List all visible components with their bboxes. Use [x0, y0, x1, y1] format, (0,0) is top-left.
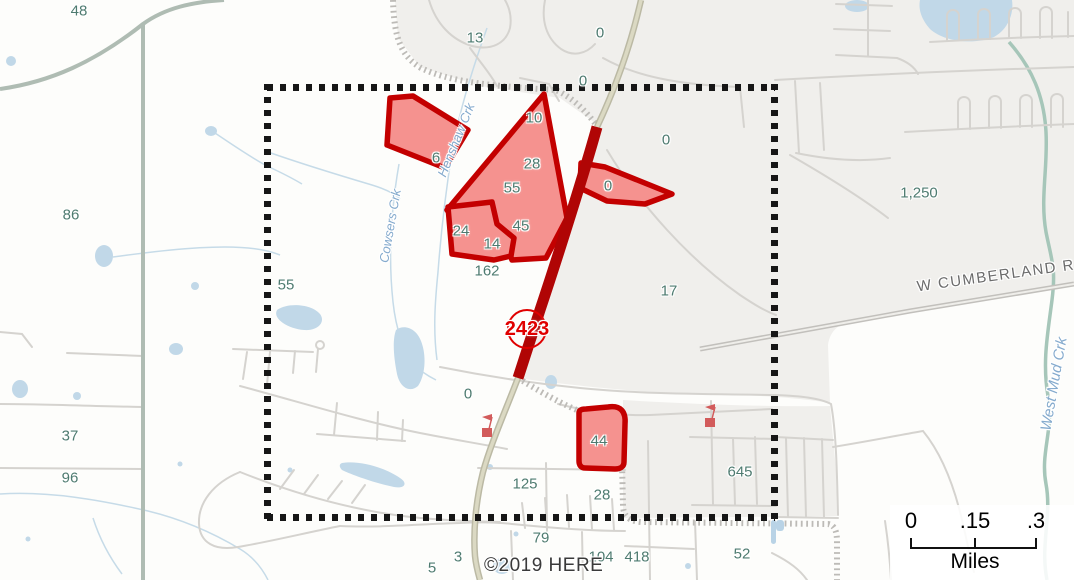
scale-bar-tick — [974, 538, 976, 549]
selected-parcel[interactable] — [387, 96, 468, 168]
aoi-boundary-bottom — [267, 514, 775, 521]
map-canvas[interactable]: 4886553796130001,25061028554524140162170… — [0, 0, 1074, 580]
scale-tick-label: .15 — [960, 508, 991, 534]
route-shield: 2423 — [507, 309, 547, 349]
scale-tick-label: .3 — [1027, 508, 1045, 534]
scale-tick-label: 0 — [905, 508, 917, 534]
aoi-boundary-right — [771, 84, 778, 521]
scale-bar-tick — [910, 538, 912, 549]
scale-bar: 0 .15 .3 Miles — [890, 505, 1074, 580]
scale-bar-tick — [1035, 538, 1037, 549]
scale-unit-label: Miles — [950, 550, 999, 574]
flag-marker — [482, 414, 492, 437]
aoi-boundary-left — [264, 84, 271, 521]
aoi-boundary-top — [267, 84, 775, 91]
selected-parcel[interactable] — [579, 407, 625, 469]
route-shield-number: 2423 — [495, 318, 559, 341]
poi-icon — [771, 520, 784, 544]
map-attribution: ©2019 HERE — [484, 555, 603, 577]
